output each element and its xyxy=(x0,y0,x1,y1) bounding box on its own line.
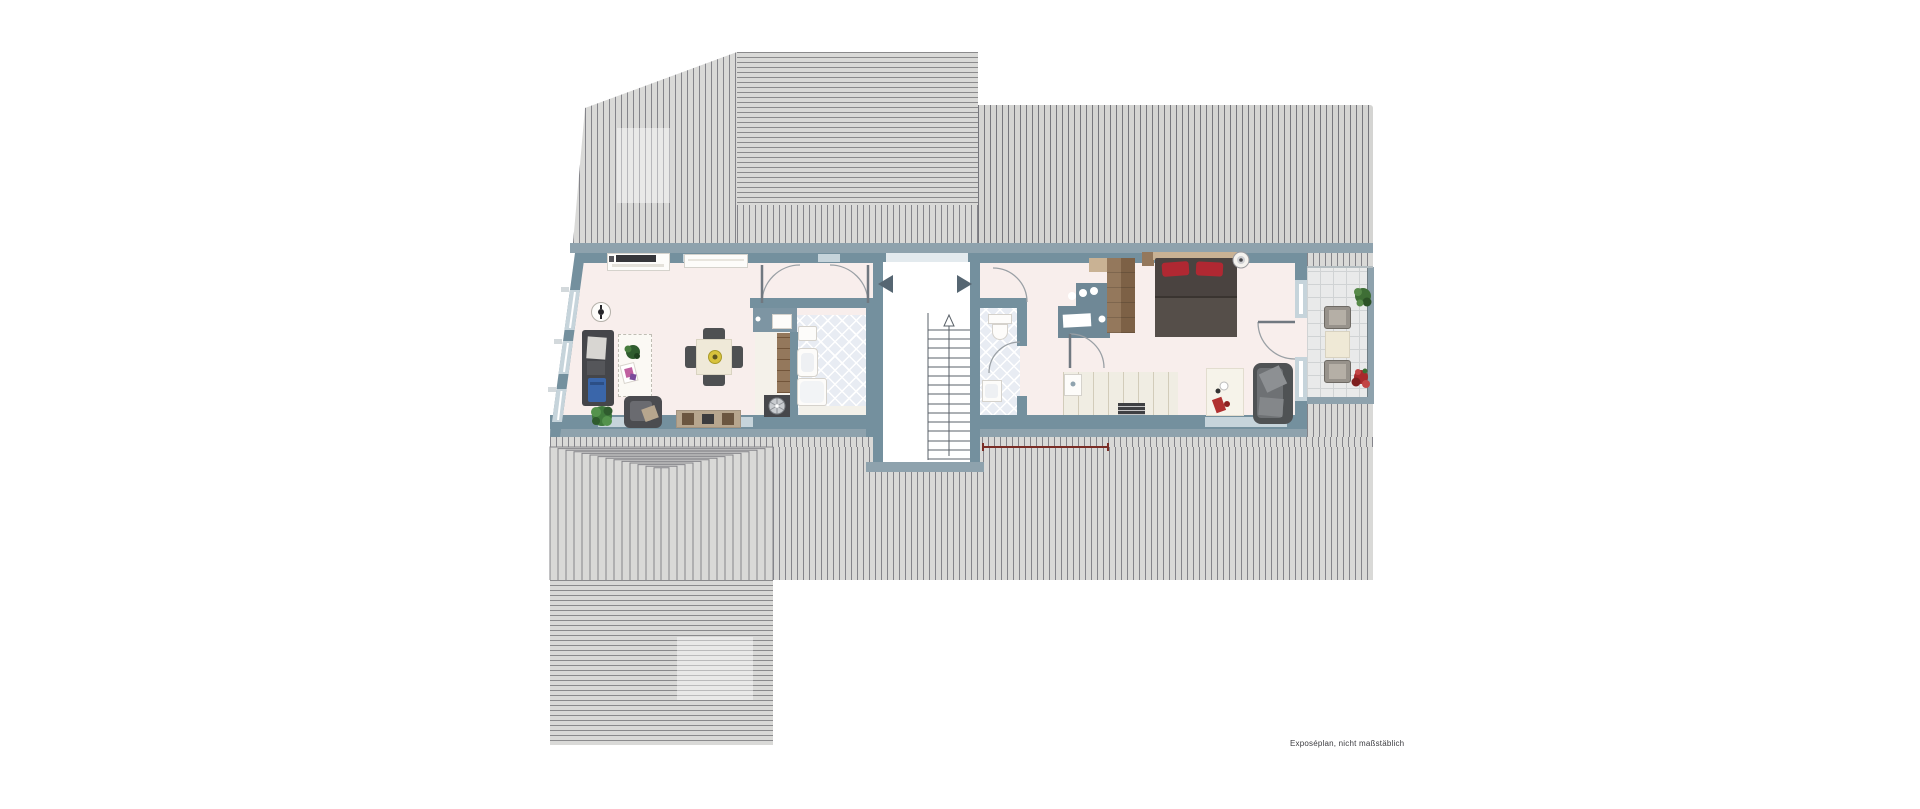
washing-machine-drum xyxy=(769,398,785,414)
floor-plan-canvas: Exposéplan, nicht maßstäblich xyxy=(0,0,1920,809)
door-arcs xyxy=(762,265,1295,373)
wall-clock-icon xyxy=(592,303,611,322)
floor-lamp-icon xyxy=(1233,252,1249,268)
vanity-faucet-icon xyxy=(756,317,761,322)
hip-roof-rings xyxy=(550,447,773,580)
desk-items xyxy=(1068,287,1106,323)
studio-rug-items xyxy=(1212,382,1230,413)
wall-left-slanted xyxy=(548,253,585,437)
magazine-icon xyxy=(620,363,638,384)
balcony-red-plant-icon xyxy=(1352,369,1371,389)
window-sill-2 xyxy=(554,339,562,344)
window-sill-1 xyxy=(561,287,569,292)
potted-plant-living-icon xyxy=(591,406,613,426)
plan-linework-layer xyxy=(0,0,1920,809)
fruit-bowl-icon xyxy=(709,351,722,364)
balcony-green-plant-icon xyxy=(1354,288,1372,307)
kitchen-faucet-icon xyxy=(1071,382,1076,387)
stair-up-arrow-icon xyxy=(944,315,954,326)
entry-arrow-right-icon xyxy=(957,275,972,293)
red-dimension-line xyxy=(983,443,1108,451)
disclaimer-text: Exposéplan, nicht maßstäblich xyxy=(1290,739,1450,748)
window-sill-3 xyxy=(548,387,556,392)
door-leaves xyxy=(762,265,1295,368)
staircase xyxy=(928,313,970,460)
rug-plant-icon xyxy=(625,345,641,359)
entry-arrow-left-icon xyxy=(878,275,893,293)
